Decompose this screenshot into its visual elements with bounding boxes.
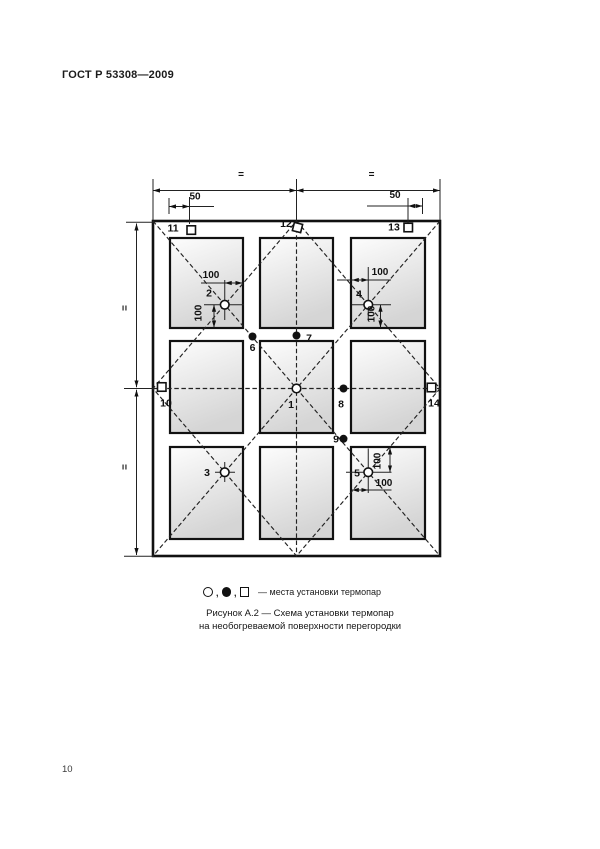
panel: [351, 238, 425, 328]
point-label-6: 6: [250, 342, 256, 354]
square-marker-12: [292, 222, 302, 232]
open-circle-marker-5: [364, 468, 373, 477]
legend-separator: ,: [216, 588, 219, 598]
legend-separator: ,: [234, 588, 237, 598]
open-circle-marker-2: [220, 300, 229, 309]
point-label-4: 4: [356, 289, 362, 301]
equal-mark-top-right: =: [369, 170, 375, 181]
point-label-9: 9: [333, 434, 339, 446]
dim-50-left: 50: [189, 192, 201, 203]
filled-circle-marker-9: [340, 435, 348, 443]
dim-100-p2-horizontal: 100: [203, 270, 220, 281]
open-circle-legend-icon: [203, 587, 213, 597]
equal-mark-top-left: =: [238, 170, 244, 181]
page-number: 10: [62, 764, 73, 775]
dim-100-p2-vertical: 100: [194, 304, 205, 321]
square-marker-14: [427, 383, 436, 392]
dim-100-p4-vertical: 100: [367, 305, 378, 322]
legend: , , — места установки термопар: [0, 586, 592, 598]
filled-circle-legend-icon: [222, 587, 232, 597]
panel: [351, 341, 425, 433]
panel: [170, 341, 243, 433]
dim-50-right: 50: [389, 190, 401, 201]
square-marker-13: [404, 223, 413, 232]
point-label-1: 1: [288, 399, 294, 411]
square-legend-icon: [240, 587, 250, 597]
point-label-5: 5: [354, 468, 360, 480]
point-label-3: 3: [204, 467, 210, 479]
filled-circle-marker-7: [293, 332, 301, 340]
equal-mark-left-lower: =: [118, 464, 129, 470]
open-circle-marker-1: [292, 384, 301, 393]
document-page: ГОСТ Р 53308—2009: [0, 0, 600, 849]
figure-a2-diagram: = = = = 50 50 100 100 100 100 100 100 1 …: [0, 0, 600, 849]
filled-circle-marker-6: [249, 333, 257, 341]
point-label-8: 8: [338, 399, 344, 411]
equal-mark-left-upper: =: [118, 305, 129, 311]
point-label-11: 11: [167, 223, 178, 235]
point-label-10: 10: [160, 398, 172, 410]
point-label-12: 12: [280, 218, 292, 230]
dim-100-p4-horizontal: 100: [372, 267, 389, 278]
point-label-7: 7: [306, 333, 312, 345]
filled-circle-marker-8: [340, 385, 348, 393]
dim-100-p5-vertical: 100: [373, 452, 384, 469]
figure-caption-line1: Рисунок А.2 — Схема установки термопар: [0, 608, 600, 621]
point-label-2: 2: [206, 288, 212, 300]
square-marker-10: [158, 383, 167, 392]
figure-caption: Рисунок А.2 — Схема установки термопар н…: [0, 608, 600, 633]
square-marker-11: [187, 226, 196, 235]
point-label-13: 13: [388, 222, 400, 234]
legend-description: — места установки термопар: [258, 587, 381, 597]
point-label-14: 14: [428, 398, 440, 410]
figure-caption-line2: на необогреваемой поверхности перегородк…: [0, 621, 600, 634]
open-circle-marker-3: [220, 468, 229, 477]
dim-100-p5-horizontal: 100: [376, 478, 393, 489]
